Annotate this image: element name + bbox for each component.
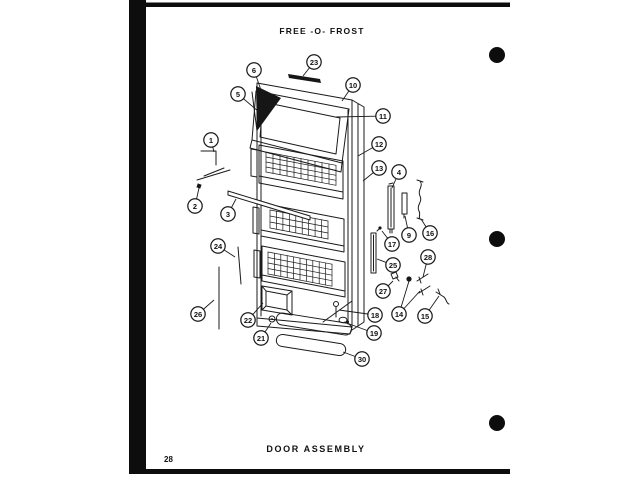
callout-18: 18	[339, 308, 382, 322]
scanned-manual-page: FREE -O- FROST DOOR ASSEMBLY 28	[0, 0, 640, 480]
screw-17-stem	[377, 229, 379, 231]
top-rule-line	[129, 3, 510, 8]
callout-4: 4	[392, 165, 406, 188]
callout-24: 24	[211, 239, 235, 257]
door-pocket	[262, 286, 292, 315]
callout-number: 17	[388, 240, 396, 249]
spacer-bar-9	[402, 193, 407, 214]
shelf-basket-2	[253, 203, 344, 252]
callout-number: 14	[395, 310, 404, 319]
callout-number: 10	[349, 81, 357, 90]
callout-number: 27	[379, 287, 387, 296]
callout-27: 27	[376, 281, 393, 298]
corner-flap	[252, 86, 281, 131]
callout-1: 1	[204, 133, 218, 152]
callout-number: 13	[375, 164, 383, 173]
bottom-rule-line	[129, 469, 510, 474]
page-title: FREE -O- FROST	[279, 26, 364, 36]
shelf-grid	[266, 152, 336, 185]
hole-center	[271, 318, 273, 320]
callout-number: 12	[375, 140, 383, 149]
pocket-inner	[266, 291, 287, 310]
callout-number: 25	[389, 261, 397, 270]
callout-number: 21	[257, 334, 265, 343]
callout-3: 3	[221, 199, 236, 221]
callout-9: 9	[402, 216, 416, 242]
bracket-1-blade	[197, 170, 230, 180]
callout-number: 22	[244, 316, 252, 325]
shelf-end-cap	[251, 149, 257, 177]
page-canvas: FREE -O- FROST DOOR ASSEMBLY 28	[0, 0, 640, 480]
binder-spine-bar	[129, 0, 146, 474]
callout-30: 30	[343, 352, 369, 366]
callout-11: 11	[336, 109, 390, 123]
screw-2	[196, 183, 201, 188]
punch-hole-icon	[489, 231, 505, 247]
gasket-loops	[275, 312, 352, 356]
callout-number: 5	[236, 90, 240, 99]
page-number: 28	[164, 455, 173, 464]
bracket-1	[201, 151, 216, 165]
callout-28: 28	[421, 250, 435, 277]
callout-16: 16	[421, 219, 437, 240]
callout-12: 12	[358, 137, 386, 156]
callout-number: 23	[310, 58, 318, 67]
page-furniture	[129, 0, 510, 474]
callout-number: 19	[370, 329, 378, 338]
callout-number: 1	[209, 136, 213, 145]
shelf-grid	[268, 252, 332, 286]
punch-hole-icon	[489, 415, 505, 431]
retainer-wire-16	[418, 181, 421, 219]
gasket-loop-upper	[276, 312, 353, 336]
callout-number: 9	[407, 231, 411, 240]
callout-13: 13	[363, 161, 386, 181]
plug-14a	[406, 276, 411, 281]
callout-number: 16	[426, 229, 434, 238]
callout-number: 6	[252, 66, 256, 75]
callout-number: 18	[371, 311, 379, 320]
callouts-layer: 2365101112131234916172528271415181924262…	[188, 55, 439, 366]
shelf-end-cap	[253, 207, 259, 234]
callout-23: 23	[303, 55, 321, 76]
strip-24	[238, 247, 241, 284]
callout-25: 25	[377, 258, 400, 272]
punch-hole-icon	[489, 47, 505, 63]
callout-14: 14	[392, 281, 420, 321]
callout-number: 3	[226, 210, 230, 219]
callout-number: 2	[193, 202, 197, 211]
callout-22: 22	[241, 303, 263, 327]
callout-5: 5	[231, 87, 259, 112]
callout-26: 26	[191, 300, 214, 321]
shelf-basket-3	[254, 246, 345, 297]
callout-number: 30	[358, 355, 366, 364]
callout-10: 10	[342, 78, 360, 101]
handle-trim-3	[228, 191, 310, 220]
callout-number: 26	[194, 310, 202, 319]
shelf-basket-1	[251, 145, 343, 199]
hinge-screw	[334, 302, 339, 307]
callout-number: 24	[214, 242, 223, 251]
callout-number: 11	[379, 112, 387, 121]
callout-2: 2	[188, 188, 202, 213]
flap-dark-triangle	[256, 86, 281, 131]
figure-caption: DOOR ASSEMBLY	[266, 444, 365, 454]
callout-number: 28	[424, 253, 432, 262]
gasket-loop-lower	[275, 334, 346, 357]
callout-17: 17	[382, 231, 399, 251]
trim-strip-23	[288, 74, 321, 83]
callout-15: 15	[418, 296, 439, 323]
callout-number: 15	[421, 312, 429, 321]
